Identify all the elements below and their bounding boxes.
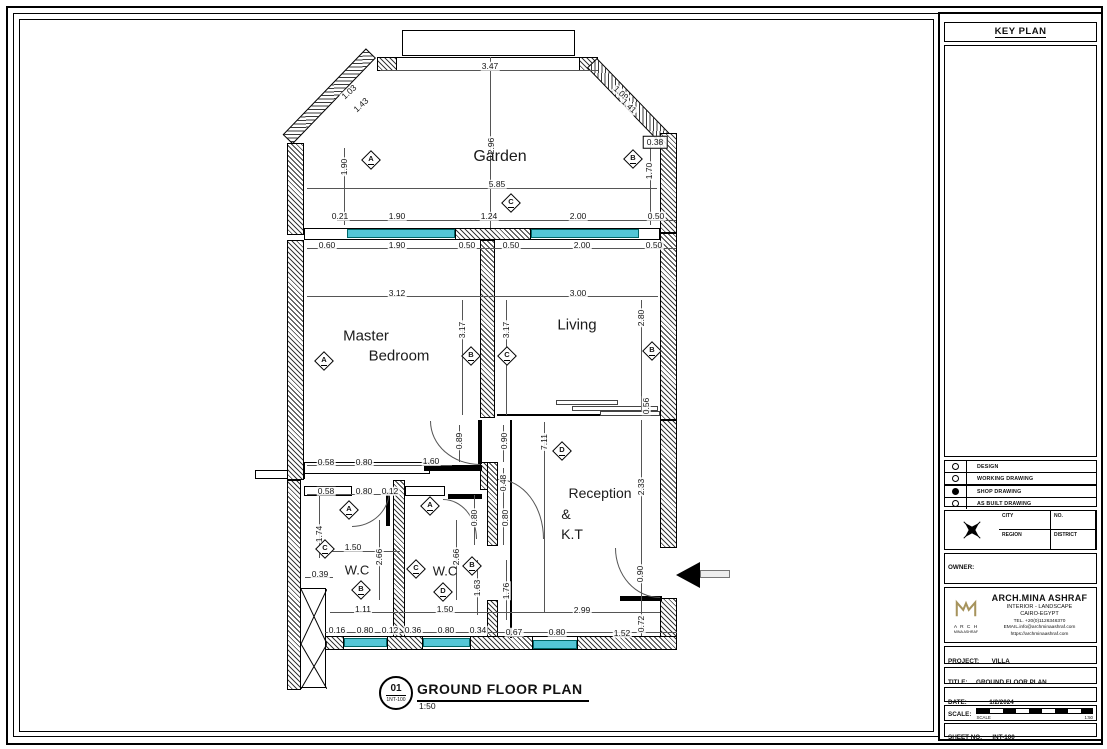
shelf-bar bbox=[600, 411, 660, 416]
dimension-label: 0.67 bbox=[505, 628, 524, 637]
dimension-label: 0.80 bbox=[355, 487, 374, 496]
wall-hatch bbox=[287, 143, 304, 235]
legend-circle-icon bbox=[945, 498, 967, 509]
shelf-bar bbox=[556, 400, 618, 405]
architect-website[interactable]: https://archminaashraf.com bbox=[985, 632, 1094, 638]
owner-box: OWNER: bbox=[944, 553, 1097, 584]
drawing-number: 01 bbox=[386, 683, 405, 696]
legend-label: DESIGN bbox=[967, 464, 999, 470]
wall-hatch bbox=[577, 636, 677, 650]
project-value: VILLA bbox=[992, 658, 1010, 665]
legend-row: DESIGN bbox=[945, 461, 1096, 473]
sheet-title-value: GROUND FLOOR PLAN bbox=[976, 679, 1047, 686]
dimension-label: 0.16 bbox=[328, 626, 347, 635]
dimension-label: 1.63 bbox=[473, 579, 482, 598]
dimension-label: 0.72 bbox=[637, 615, 646, 634]
dimension-label: 2.00 bbox=[573, 241, 592, 250]
no-cell: NO. bbox=[1051, 511, 1096, 530]
legend-label: AS BUILT DRAWING bbox=[967, 501, 1031, 507]
dimension-label: 2.99 bbox=[573, 606, 592, 615]
entrance-arrow-stem bbox=[700, 570, 730, 578]
section-marker-a: A bbox=[361, 150, 381, 170]
section-marker-c: C bbox=[315, 539, 335, 559]
architect-city: CAIRO-EGYPT bbox=[985, 611, 1094, 619]
sheet-no-box: SHEET NO. INT-100 bbox=[944, 723, 1097, 737]
drawing-number-bubble: 01 1NT-100 bbox=[379, 676, 413, 710]
legend-circle-icon bbox=[945, 486, 967, 497]
section-marker-b: B bbox=[461, 346, 481, 366]
dimension-label: 1.76 bbox=[502, 582, 511, 601]
dimension-label: 0.58 bbox=[317, 487, 336, 496]
architect-name: ARCH.MINA ASHRAF bbox=[985, 592, 1094, 604]
dimension-line bbox=[330, 551, 400, 552]
scale-sub-right: 1:50 bbox=[1084, 715, 1093, 720]
architect-logo: A R C H MINA ASHRAF bbox=[947, 596, 985, 634]
dimension-label: 7.11 bbox=[540, 433, 549, 451]
drawing-sheet: 3.471.031.431.091.411.902.961.705.850.38… bbox=[0, 0, 1107, 749]
region-cell: REGION bbox=[999, 530, 1051, 549]
legend-label: SHOP DRAWING bbox=[967, 489, 1021, 495]
dimension-label: 3.00 bbox=[569, 289, 588, 298]
dimension-label: 5.85 bbox=[488, 180, 507, 189]
section-marker-d: D bbox=[552, 441, 572, 461]
dimension-label: 0.48 bbox=[499, 474, 508, 493]
dimension-label: 1.70 bbox=[645, 162, 654, 181]
door-leaf bbox=[448, 494, 482, 499]
dimension-label: 0.90 bbox=[500, 432, 509, 451]
wall-hatch bbox=[487, 462, 498, 546]
dimension-label: 0.56 bbox=[642, 397, 651, 416]
dimension-label: 3.17 bbox=[458, 321, 467, 340]
dimension-label: 1.50 bbox=[436, 605, 455, 614]
room-label: & bbox=[561, 506, 570, 522]
room-label: Master bbox=[343, 328, 389, 345]
entrance-arrow-icon bbox=[676, 562, 700, 588]
dimension-label: 1.90 bbox=[340, 158, 349, 177]
dimension-label: 0.50 bbox=[645, 241, 664, 250]
wall-hatch bbox=[480, 240, 495, 418]
dimension-label: 0.80 bbox=[355, 458, 374, 467]
compass-cell bbox=[945, 511, 999, 549]
wall-segment bbox=[402, 30, 575, 56]
legend-box: DESIGNWORKING DRAWINGSHOP DRAWINGAS BUIL… bbox=[944, 460, 1097, 507]
room-label: K.T bbox=[561, 526, 583, 542]
dimension-label: 0.80 bbox=[548, 628, 567, 637]
key-plan-header: KEY PLAN bbox=[944, 22, 1097, 42]
shaft-cross-icon bbox=[301, 589, 327, 689]
wall-hatch bbox=[660, 233, 677, 420]
scale-box: SCALE: SCALE 1:50 bbox=[944, 705, 1097, 721]
air-shaft bbox=[300, 588, 326, 688]
dimension-label: 0.60 bbox=[318, 241, 337, 250]
architect-field: INTERIOR - LANDSCAPE bbox=[985, 604, 1094, 612]
dimension-line bbox=[641, 420, 642, 636]
region-table: CITY NO. REGION DISTRICT bbox=[944, 510, 1097, 550]
section-marker-b: B bbox=[462, 556, 482, 576]
dimension-label: 2.33 bbox=[637, 478, 646, 497]
section-marker-b: B bbox=[642, 341, 662, 361]
window bbox=[347, 229, 455, 238]
section-marker-c: C bbox=[406, 559, 426, 579]
dimension-line bbox=[307, 296, 658, 297]
room-label: W.C bbox=[433, 564, 458, 579]
dimension-label: 1.11 bbox=[354, 605, 372, 614]
dimension-label: 0.80 bbox=[501, 509, 510, 528]
legend-rows: DESIGNWORKING DRAWINGSHOP DRAWINGAS BUIL… bbox=[945, 461, 1096, 509]
dimension-label: 0.89 bbox=[455, 432, 464, 451]
wall-hatch bbox=[455, 228, 531, 240]
district-cell: DISTRICT bbox=[1051, 530, 1096, 549]
section-marker-c: C bbox=[497, 346, 517, 366]
wall-hatch bbox=[287, 240, 304, 480]
logo-sub2: MINA ASHRAF bbox=[947, 630, 985, 634]
dimension-line bbox=[307, 188, 657, 189]
graphic-scale-bar bbox=[976, 708, 1093, 714]
project-box: PROJECT: VILLA bbox=[944, 646, 1097, 664]
scale-label: SCALE: bbox=[948, 711, 971, 718]
drawing-scale: 1:50 bbox=[419, 701, 436, 711]
room-label: Garden bbox=[473, 148, 526, 166]
dimension-label: 0.58 bbox=[317, 458, 336, 467]
window bbox=[423, 638, 470, 647]
wall-hatch bbox=[387, 636, 423, 650]
dimension-label: 0.80 bbox=[470, 509, 479, 528]
section-marker-a: A bbox=[314, 351, 334, 371]
dimension-label: 1.50 bbox=[344, 543, 363, 552]
dimension-label: 0.50 bbox=[502, 241, 521, 250]
window bbox=[344, 638, 387, 647]
dimension-label: 0.12 bbox=[381, 487, 400, 496]
architect-box: A R C H MINA ASHRAF ARCH.MINA ASHRAF INT… bbox=[944, 587, 1097, 643]
section-marker-a: A bbox=[339, 500, 359, 520]
dimension-label: 2.00 bbox=[569, 212, 588, 221]
dimension-label: 0.39 bbox=[311, 570, 330, 579]
dimension-label: 0.34 bbox=[469, 626, 488, 635]
section-marker-b: B bbox=[623, 149, 643, 169]
sheet-no-label: SHEET NO. bbox=[948, 734, 982, 741]
room-label: W.C bbox=[345, 563, 370, 578]
section-marker-b: B bbox=[351, 580, 371, 600]
wall-segment bbox=[405, 486, 445, 496]
section-marker-a: A bbox=[420, 496, 440, 516]
wall-hatch bbox=[470, 636, 533, 650]
project-label: PROJECT: bbox=[948, 658, 979, 665]
wall-hatch bbox=[660, 420, 677, 548]
compass-icon bbox=[961, 519, 983, 541]
dimension-label: 0.80 bbox=[437, 626, 456, 635]
key-plan-box bbox=[944, 45, 1097, 457]
dimension-label: 1.24 bbox=[480, 212, 499, 221]
dimension-label: 0.12 bbox=[381, 626, 400, 635]
section-marker-c: C bbox=[501, 193, 521, 213]
dimension-label: 3.47 bbox=[481, 62, 500, 71]
date-box: DATE: 1/2/2024 bbox=[944, 687, 1097, 702]
legend-row: SHOP DRAWING bbox=[945, 486, 1096, 498]
window bbox=[533, 640, 577, 649]
dimension-label: 1.52 bbox=[613, 629, 632, 638]
legend-circle-icon bbox=[945, 473, 967, 484]
room-label: Living bbox=[557, 317, 596, 334]
dimension-line bbox=[307, 248, 676, 249]
dimension-label: 0.90 bbox=[636, 565, 645, 584]
sheet-title-label: TITLE: bbox=[948, 679, 968, 686]
drawing-sheet-ref: 1NT-100 bbox=[386, 696, 405, 703]
dimension-label: 3.12 bbox=[388, 289, 407, 298]
window bbox=[531, 229, 639, 238]
wall-hatch bbox=[393, 480, 405, 638]
dimension-label: 0.80 bbox=[356, 626, 375, 635]
legend-label: WORKING DRAWING bbox=[967, 476, 1033, 482]
dimension-label: 1.90 bbox=[388, 212, 407, 221]
city-cell: CITY bbox=[999, 511, 1051, 530]
drawing-title: GROUND FLOOR PLAN bbox=[417, 681, 589, 702]
dimension-label: 0.38 bbox=[643, 136, 668, 149]
room-label: Reception bbox=[568, 485, 631, 501]
title-block-panel: KEY PLAN DESIGNWORKING DRAWINGSHOP DRAWI… bbox=[938, 12, 1103, 741]
dimension-label: 0.36 bbox=[404, 626, 423, 635]
wall-hatch bbox=[377, 57, 397, 71]
legend-row: WORKING DRAWING bbox=[945, 473, 1096, 486]
sheet-no-value: INT-100 bbox=[992, 734, 1014, 741]
dimension-label: 2.66 bbox=[375, 548, 384, 567]
section-marker-d: D bbox=[433, 582, 453, 602]
owner-label: OWNER: bbox=[948, 564, 974, 571]
key-plan-title: KEY PLAN bbox=[995, 26, 1047, 38]
wall-hatch bbox=[287, 480, 301, 690]
dimension-label: 3.17 bbox=[502, 321, 511, 340]
dimension-label: 0.21 bbox=[331, 212, 350, 221]
dimension-line bbox=[330, 612, 660, 613]
scale-sub-left: SCALE bbox=[976, 715, 990, 720]
dimension-label: 1.60 bbox=[422, 457, 441, 466]
sheet-title-box: TITLE: GROUND FLOOR PLAN bbox=[944, 667, 1097, 684]
dimension-label: 2.80 bbox=[637, 309, 646, 328]
dimension-label: 1.90 bbox=[388, 241, 407, 250]
logo-monogram-icon bbox=[952, 596, 980, 620]
dimension-label: 0.50 bbox=[647, 212, 666, 221]
legend-circle-icon bbox=[945, 461, 967, 472]
dimension-label: 0.50 bbox=[458, 241, 477, 250]
legend-row: AS BUILT DRAWING bbox=[945, 498, 1096, 509]
room-label: Bedroom bbox=[369, 348, 430, 365]
